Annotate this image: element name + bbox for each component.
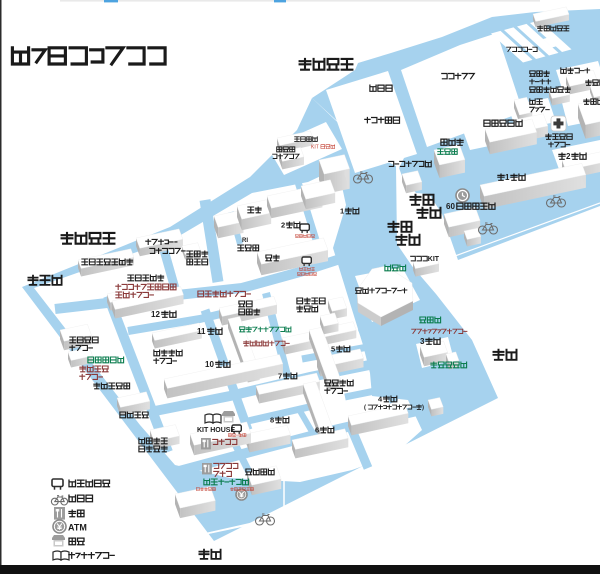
svg-text:KIT: KIT (428, 256, 440, 263)
svg-text:KIT: KIT (311, 144, 319, 150)
svg-text:KIT HOUSE: KIT HOUSE (197, 427, 235, 434)
svg-text:8: 8 (270, 415, 274, 424)
svg-text:2: 2 (566, 152, 571, 161)
svg-text:1: 1 (340, 206, 344, 215)
svg-text:11: 11 (197, 327, 206, 336)
svg-text:2: 2 (281, 220, 285, 229)
svg-text:12: 12 (151, 310, 160, 319)
svg-text:6: 6 (315, 425, 319, 434)
svg-text:60: 60 (446, 202, 455, 211)
svg-text:1: 1 (505, 173, 510, 182)
svg-text:RI: RI (242, 238, 248, 244)
svg-text:3: 3 (420, 337, 425, 346)
svg-text:): ) (422, 405, 424, 411)
svg-text:7: 7 (278, 371, 282, 380)
svg-text:ATM: ATM (68, 523, 87, 533)
svg-text:10: 10 (205, 360, 214, 369)
svg-text:(: ( (364, 405, 366, 411)
svg-text:5: 5 (331, 344, 335, 353)
